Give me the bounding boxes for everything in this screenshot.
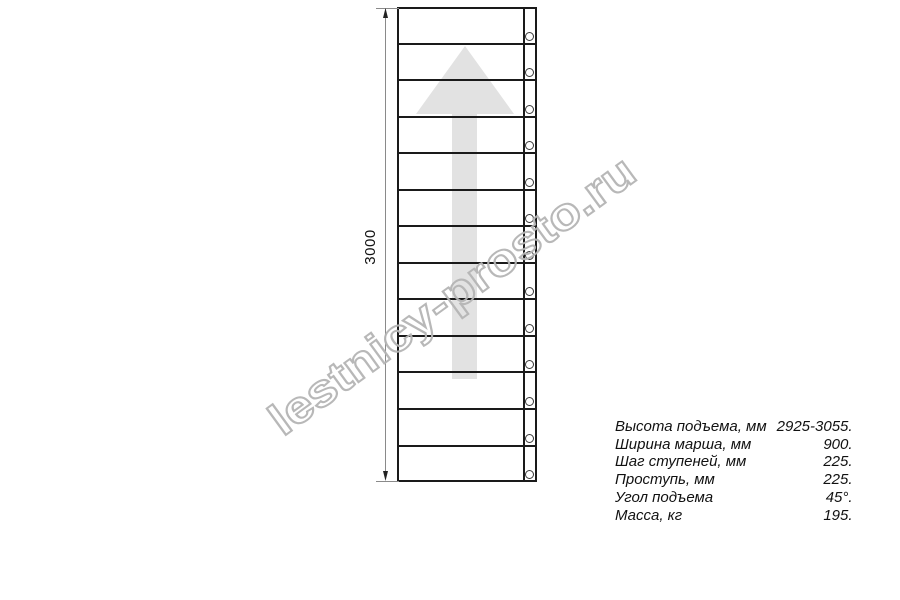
step-line [399,262,535,264]
drawing-canvas: 3000 lestnicy-prosto.ru Высота подъема, … [0,0,900,600]
bolt-circle-icon [525,105,534,114]
extension-line-bottom [376,481,399,482]
spec-table: Высота подъема, мм2925-3055.Ширина марша… [615,418,845,524]
spec-row-value: 900. [777,436,853,454]
spec-row-value: 45°. [777,489,853,507]
bolt-circle-icon [525,32,534,41]
bolt-circle-icon [525,251,534,260]
spec-row-label: Ширина марша, мм [615,436,767,454]
step-line [399,152,535,154]
step-line [399,298,535,300]
step-line [399,371,535,373]
bolt-circle-icon [525,397,534,406]
step-line [399,116,535,118]
bolt-circle-icon [525,178,534,187]
spec-row-label: Масса, кг [615,507,767,525]
spec-row-label: Высота подъема, мм [615,418,767,436]
spec-row-label: Угол подъема [615,489,767,507]
spec-row-value: 195. [777,507,853,525]
spec-row-label: Шаг ступеней, мм [615,453,767,471]
bolt-circle-icon [525,470,534,479]
bolt-circle-icon [525,324,534,333]
step-line [399,335,535,337]
extension-line-top [376,8,399,9]
spec-row-value: 225. [777,453,853,471]
step-line [399,225,535,227]
dimension-line [385,9,386,479]
bolt-circle-icon [525,434,534,443]
dimension-value-label: 3000 [362,217,378,277]
spec-row-value: 225. [777,471,853,489]
step-line [399,445,535,447]
spec-row-value: 2925-3055. [777,418,853,436]
step-line [399,79,535,81]
step-line [399,43,535,45]
spec-row-label: Проступь, мм [615,471,767,489]
step-line [399,408,535,410]
step-line [399,189,535,191]
